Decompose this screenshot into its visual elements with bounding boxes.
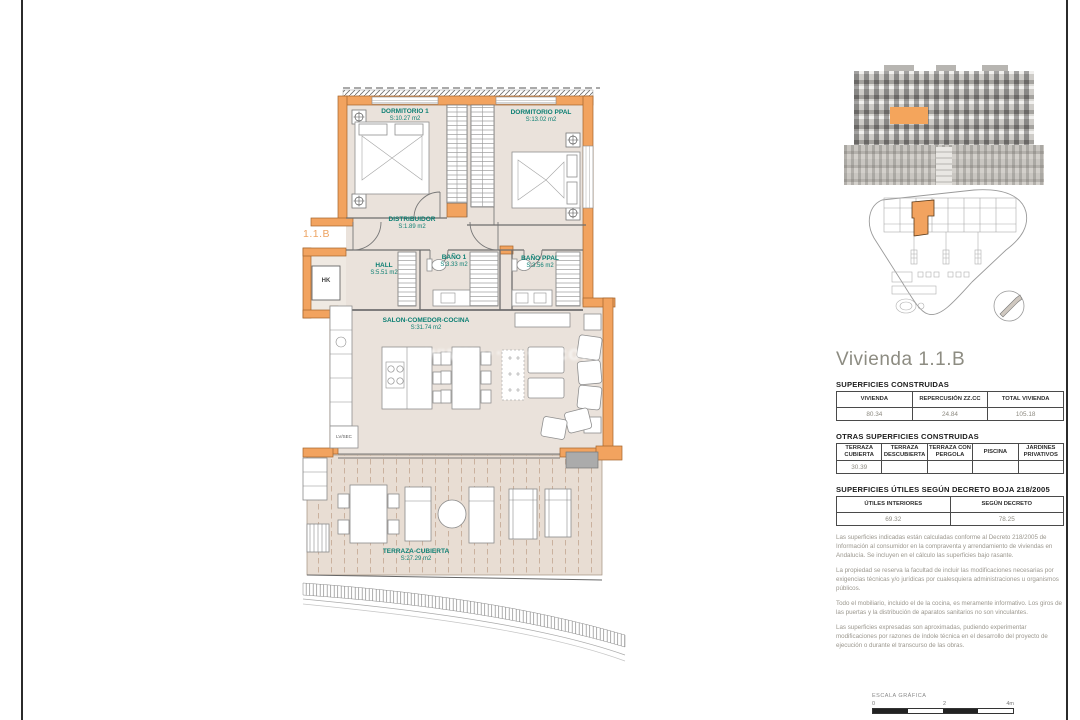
- bed-dormitorio1: [355, 122, 429, 194]
- upper-structure-band: [343, 88, 600, 96]
- cell-value: 105.18: [988, 408, 1064, 421]
- room-label-salon: SALON-COMEDOR-COCINA S:31.74 m2: [378, 317, 474, 333]
- legal-note: Las superficies indicadas están calculad…: [836, 534, 1064, 561]
- scale-bar: [872, 708, 1014, 714]
- plan-sheet: 1.1.B DORMITORIO 1 S:10.27 m2 DORMITORIO…: [0, 0, 1080, 720]
- room-area: S:3.33 m2: [428, 262, 480, 270]
- room-area: S:27.29 m2: [378, 556, 454, 564]
- room-label-distribuidor: DISTRIBUIDOR S:1.89 m2: [378, 216, 446, 232]
- room-label-terraza: TERRAZA-CUBIERTA S:27.29 m2: [378, 548, 454, 564]
- cell-value: [927, 461, 972, 474]
- room-name: BAÑO 1: [442, 254, 467, 261]
- col-header: TOTAL VIVIENDA: [988, 392, 1064, 408]
- room-area: S:13.02 m2: [498, 117, 584, 125]
- room-label-hall: HALL S:5.51 m2: [358, 262, 410, 278]
- legal-note: Las superficies expresadas son aproximad…: [836, 624, 1064, 651]
- legal-note: La propiedad se reserva la facultad de i…: [836, 567, 1064, 594]
- section-heading-constructed: SUPERFICIES CONSTRUIDAS: [836, 380, 1064, 389]
- lvsec-label: LV/SEC: [330, 434, 358, 439]
- cell-value: 24.84: [912, 408, 988, 421]
- building-elevation-photo: [844, 63, 1044, 185]
- info-panel: Vivienda 1.1.B SUPERFICIES CONSTRUIDAS V…: [836, 63, 1064, 657]
- col-header: ÚTILES INTERIORES: [837, 497, 951, 513]
- highlighted-unit: [890, 107, 928, 124]
- entrance-path: [936, 147, 952, 185]
- useful-areas-table: ÚTILES INTERIORES SEGÚN DECRETO 69.32 78…: [836, 496, 1064, 526]
- building-facade: [854, 71, 1034, 145]
- col-header: TERRAZA CON PERGOLA: [927, 444, 972, 461]
- room-name: DORMITORIO PPAL: [511, 109, 572, 116]
- col-header: PISCINA: [973, 444, 1018, 461]
- room-name: HALL: [375, 262, 392, 269]
- cell-value: 69.32: [837, 513, 951, 526]
- col-header: REPERCUSIÓN ZZ.CC: [912, 392, 988, 408]
- hk-label: HK: [312, 278, 340, 284]
- north-compass: [994, 291, 1024, 321]
- highlighted-unit-footprint: [912, 200, 934, 236]
- bed-dormitorio-ppal: [512, 152, 580, 208]
- col-header: SEGÚN DECRETO: [950, 497, 1064, 513]
- scale-tick: 2: [943, 701, 946, 707]
- room-label-bano-ppal: BAÑO PPAL S:3.56 m2: [512, 255, 568, 271]
- room-name: SALON-COMEDOR-COCINA: [383, 317, 470, 324]
- dining-set: [441, 347, 491, 409]
- col-header: TERRAZA DESCUBIERTA: [882, 444, 927, 461]
- constructed-areas-table: VIVIENDA REPERCUSIÓN ZZ.CC TOTAL VIVIEND…: [836, 391, 1064, 421]
- col-header: VIVIENDA: [837, 392, 913, 408]
- cell-value: 80.34: [837, 408, 913, 421]
- amenities: [892, 272, 969, 313]
- room-area: S:10.27 m2: [362, 116, 448, 124]
- page-title: Vivienda 1.1.B: [836, 350, 1064, 369]
- graphic-scale: ESCALA GRÁFICA 0 2 4m: [872, 693, 1014, 714]
- room-label-dormitorio1: DORMITORIO 1 S:10.27 m2: [362, 108, 448, 124]
- room-label-dormitorio-ppal: DORMITORIO PPAL S:13.02 m2: [498, 109, 584, 125]
- kitchen-island: [382, 347, 442, 409]
- other-areas-table: TERRAZA CUBIERTA TERRAZA DESCUBIERTA TER…: [836, 443, 1064, 474]
- scale-tick: 4m: [1006, 701, 1014, 707]
- unit-number-label: 1.1.B: [303, 228, 345, 240]
- legal-note: Todo el mobiliario, incluido el de la co…: [836, 600, 1064, 618]
- scale-label: ESCALA GRÁFICA: [872, 693, 1014, 699]
- room-area: S:5.51 m2: [358, 270, 410, 278]
- room-name: DISTRIBUIDOR: [389, 216, 436, 223]
- room-name: TERRAZA-CUBIERTA: [383, 548, 449, 555]
- cell-value: [973, 461, 1018, 474]
- room-area: S:3.56 m2: [512, 263, 568, 271]
- scale-ticks: 0 2 4m: [872, 701, 1014, 708]
- terrain: [303, 575, 625, 661]
- cell-value: 78.25: [950, 513, 1064, 526]
- legal-notes: Las superficies indicadas están calculad…: [836, 534, 1064, 651]
- garden-dividers: [911, 232, 981, 264]
- site-plan: [854, 186, 1059, 336]
- cell-value: [882, 461, 927, 474]
- ac-unit: [566, 452, 598, 468]
- col-header: JARDINES PRIVATIVOS: [1018, 444, 1063, 461]
- cell-value: [1018, 461, 1063, 474]
- scale-tick: 0: [872, 701, 875, 707]
- room-name: BAÑO PPAL: [521, 255, 559, 262]
- hall-closet: [398, 252, 416, 306]
- room-name: DORMITORIO 1: [381, 108, 429, 115]
- cell-value: 30.39: [837, 461, 882, 474]
- room-area: S:1.89 m2: [378, 224, 446, 232]
- building-row: [884, 198, 1016, 232]
- section-heading-other: OTRAS SUPERFICIES CONSTRUIDAS: [836, 432, 1064, 441]
- section-heading-useful: SUPERFICIES ÚTILES SEGÚN DECRETO BOJA 21…: [836, 485, 1064, 494]
- room-label-bano1: BAÑO 1 S:3.33 m2: [428, 254, 480, 270]
- room-area: S:31.74 m2: [378, 325, 474, 333]
- col-header: TERRAZA CUBIERTA: [837, 444, 882, 461]
